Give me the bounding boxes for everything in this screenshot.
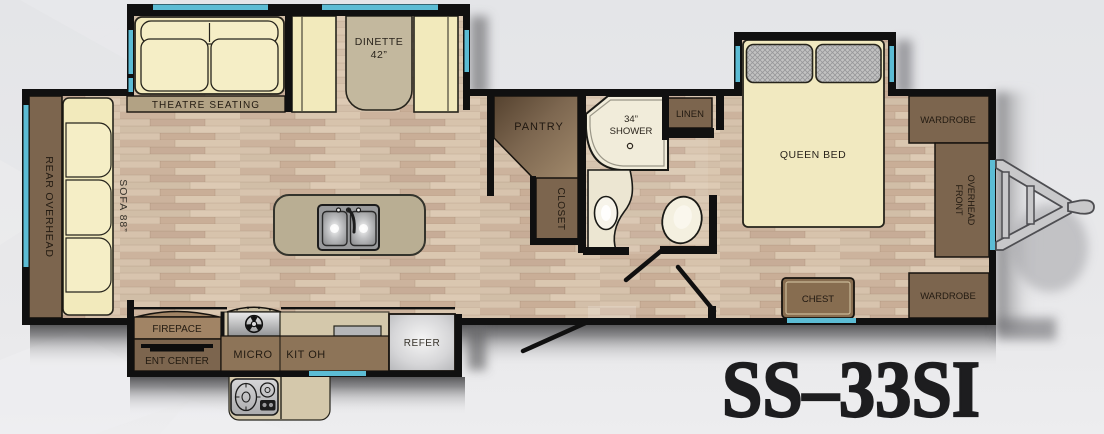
svg-text:PANTRY: PANTRY <box>514 121 564 133</box>
svg-text:WARDROBE: WARDROBE <box>920 291 976 302</box>
svg-text:42”: 42” <box>371 49 388 61</box>
svg-text:OVERHEAD: OVERHEAD <box>966 175 976 226</box>
svg-text:34”: 34” <box>624 114 638 125</box>
svg-text:CHEST: CHEST <box>802 294 834 305</box>
svg-text:SOFA 88”: SOFA 88” <box>117 179 129 233</box>
svg-text:CLOSET: CLOSET <box>555 187 566 230</box>
svg-text:MICRO: MICRO <box>233 349 272 361</box>
svg-text:THEATRE SEATING: THEATRE SEATING <box>152 100 260 111</box>
svg-text:LINEN: LINEN <box>676 109 704 120</box>
svg-text:REAR OVERHEAD: REAR OVERHEAD <box>43 156 55 257</box>
svg-text:SHOWER: SHOWER <box>610 126 653 137</box>
svg-text:ENT CENTER: ENT CENTER <box>145 356 209 367</box>
svg-text:SS–33SI: SS–33SI <box>722 346 980 434</box>
svg-text:QUEEN BED: QUEEN BED <box>780 149 846 161</box>
svg-text:KIT OH: KIT OH <box>286 349 325 361</box>
svg-text:WARDROBE: WARDROBE <box>920 115 976 126</box>
svg-text:DINETTE: DINETTE <box>355 36 403 48</box>
svg-text:REFER: REFER <box>404 338 440 349</box>
svg-text:FIREPACE: FIREPACE <box>152 324 202 335</box>
svg-text:FRONT: FRONT <box>954 185 964 216</box>
